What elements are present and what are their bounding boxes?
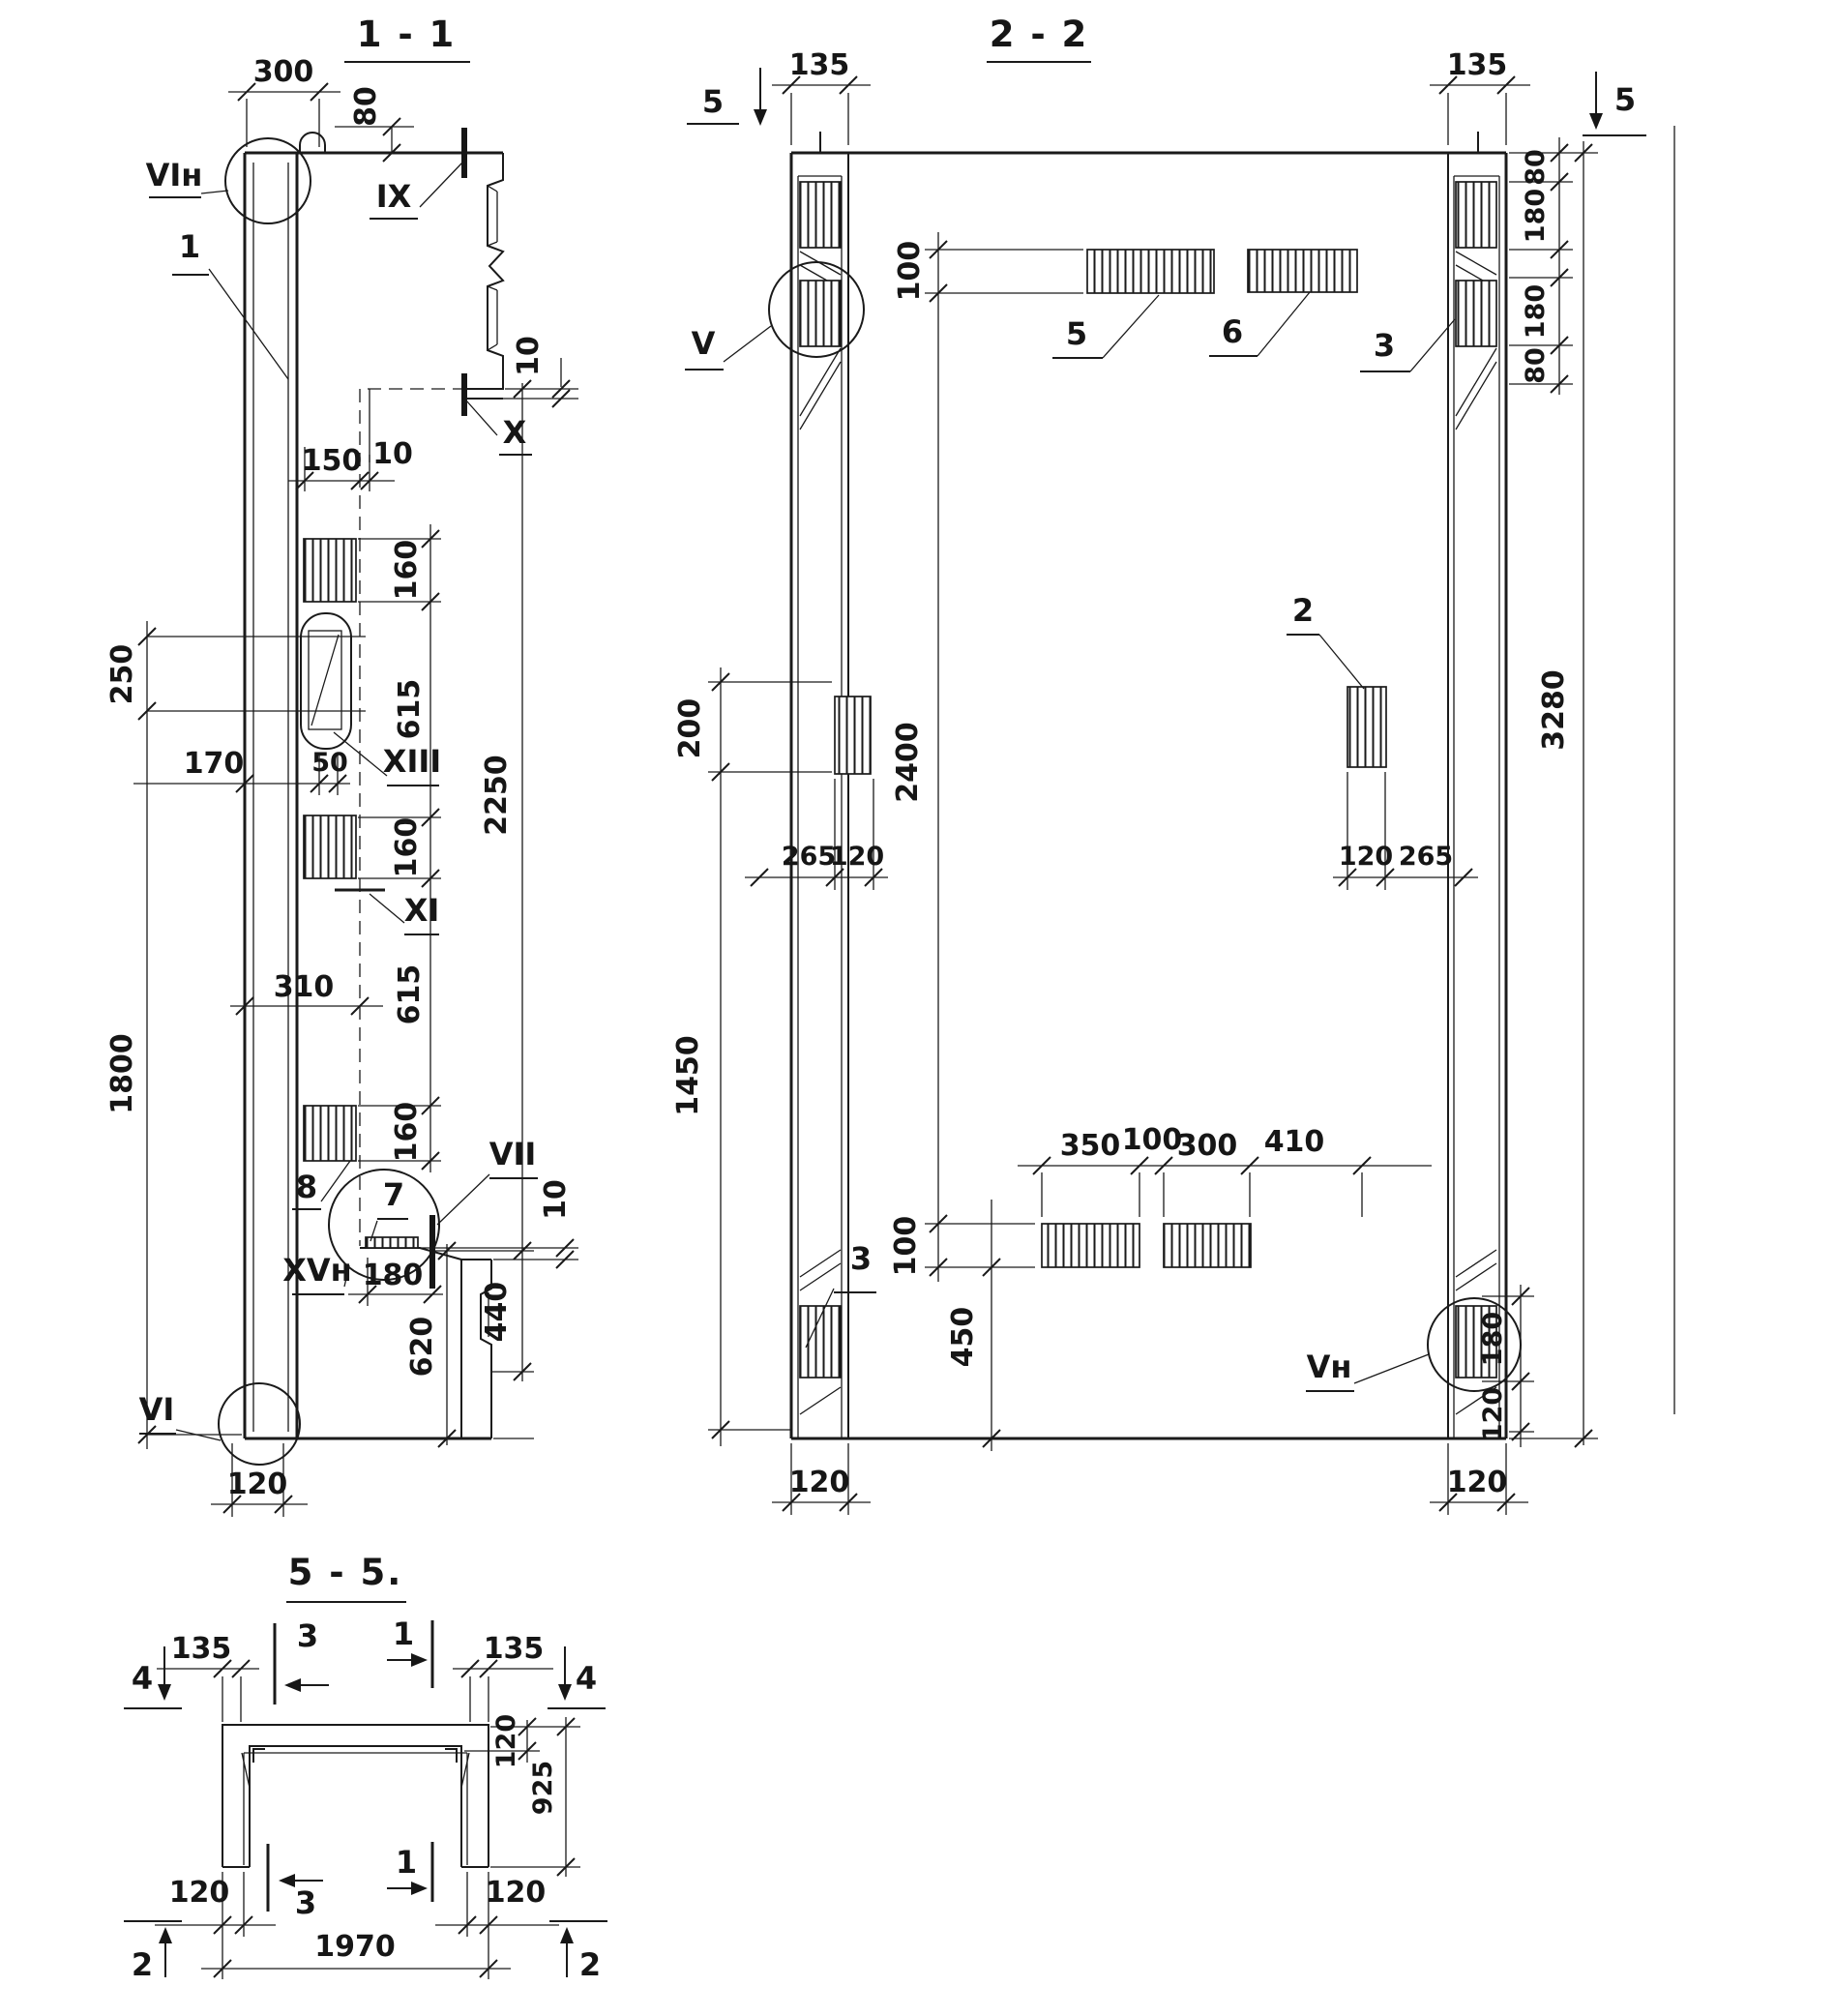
embedded-bar-bottom-b bbox=[1164, 1224, 1251, 1267]
dim-180-right: 180 bbox=[1478, 1312, 1508, 1366]
dim-160-a: 160 bbox=[390, 540, 424, 601]
dim-chain-right-1-1: 160 615 160 615 160 bbox=[358, 524, 441, 1172]
dim-10-mid: 10 bbox=[372, 437, 413, 471]
arrow-down-icon bbox=[1589, 113, 1603, 130]
dim-350: 350 bbox=[1060, 1129, 1121, 1163]
section-5-5: 5 - 5. 4 4 3 1 3 1 bbox=[124, 1552, 607, 1983]
marker-3-top: 3 bbox=[297, 1617, 318, 1654]
dim-180-group: 180 bbox=[348, 1258, 443, 1306]
dim-250: 250 bbox=[105, 644, 139, 705]
dim-120-bottom-group: 120 bbox=[211, 1443, 308, 1517]
dim-135-left-group: 135 bbox=[772, 48, 871, 145]
dim-200: 200 bbox=[673, 698, 707, 759]
dim-120-bottom-right-55-group: 120 bbox=[435, 1872, 559, 1979]
dim-1970-group: 1970 bbox=[201, 1930, 511, 1977]
embedded-block-2 bbox=[1347, 687, 1386, 767]
dim-265-120-left-group: 265 120 bbox=[745, 779, 888, 890]
marker-2-right: 2 bbox=[579, 1946, 601, 1983]
dim-2400: 2400 bbox=[891, 722, 925, 803]
dim-bottom-bars-group: 350 100 300 410 bbox=[1018, 1123, 1432, 1217]
dim-300: 300 bbox=[1177, 1129, 1238, 1163]
marker-2-left: 2 bbox=[132, 1946, 153, 1983]
dim-925: 925 bbox=[528, 1761, 558, 1815]
rebar-anchors-1-1 bbox=[301, 539, 356, 1161]
label-v-group: V bbox=[685, 325, 771, 370]
dim-120-left-mid: 120 bbox=[830, 842, 884, 872]
label-xi-group: XI bbox=[370, 892, 439, 934]
marker-1-top: 1 bbox=[393, 1616, 414, 1652]
arrow-left-icon bbox=[279, 1874, 295, 1887]
arrow-down-icon bbox=[754, 109, 767, 126]
label-8-group: 8 bbox=[292, 1161, 350, 1209]
dim-80-a: 80 bbox=[1521, 149, 1551, 186]
rebar-block bbox=[304, 1106, 356, 1161]
embedded-bar-6 bbox=[1248, 250, 1357, 292]
label-7: 7 bbox=[383, 1176, 404, 1213]
dim-chain-left-1-1: 250 1800 bbox=[105, 621, 366, 1449]
label-v: V bbox=[692, 325, 716, 362]
label-6-group: 6 bbox=[1209, 292, 1310, 356]
dim-620-group: 620 bbox=[405, 1242, 534, 1447]
arrow-down-icon bbox=[158, 1684, 171, 1701]
label-2: 2 bbox=[1292, 592, 1314, 629]
marker-3-top-group: 3 bbox=[275, 1617, 329, 1705]
section-marker-5-right: 5 bbox=[1583, 72, 1646, 135]
dim-50: 50 bbox=[311, 748, 348, 778]
marker-5-label: 5 bbox=[1614, 81, 1636, 118]
dim-80: 80 bbox=[349, 86, 383, 127]
panel-outline-1-1 bbox=[245, 133, 503, 1438]
label-7-group: 7 bbox=[370, 1176, 408, 1241]
label-1: 1 bbox=[179, 228, 200, 265]
dim-120-col-right: 120 bbox=[1447, 1466, 1508, 1499]
dim-135-left: 135 bbox=[789, 48, 850, 82]
marker-4-right: 4 bbox=[576, 1660, 597, 1697]
label-3-top: 3 bbox=[1374, 327, 1395, 364]
label-vi-group: VI bbox=[139, 1391, 221, 1440]
dim-1450: 1450 bbox=[671, 1035, 705, 1116]
dim-100-bars: 100 bbox=[1122, 1123, 1183, 1157]
marker-3-bottom: 3 bbox=[295, 1884, 316, 1921]
dim-10-bottom: 10 bbox=[539, 1179, 573, 1220]
label-vi-n: VIн bbox=[146, 157, 203, 193]
label-xi: XI bbox=[404, 892, 440, 929]
dim-80-group: 80 bbox=[335, 86, 414, 162]
dim-300-group: 300 bbox=[228, 55, 340, 147]
dim-410: 410 bbox=[1264, 1125, 1325, 1159]
label-x: X bbox=[503, 414, 527, 451]
channel-outline-5-5 bbox=[222, 1725, 488, 1867]
dim-120-right: 120 bbox=[486, 1876, 547, 1910]
marker-3-bottom-group: 3 bbox=[268, 1844, 323, 1921]
dim-150-10-group: 150 10 bbox=[288, 437, 413, 491]
arrow-right-icon bbox=[411, 1882, 428, 1895]
dim-2250-440-group: 2250 440 bbox=[435, 380, 534, 1381]
marker-1-top-group: 1 bbox=[387, 1616, 432, 1688]
dim-135-right: 135 bbox=[484, 1632, 545, 1666]
label-8: 8 bbox=[296, 1169, 317, 1205]
dim-450-group: 450 bbox=[946, 1200, 1000, 1451]
rebar-block bbox=[800, 281, 841, 346]
embedded-bar-5 bbox=[1087, 250, 1214, 293]
label-3-top-group: 3 bbox=[1360, 319, 1455, 371]
section-title: 1 - 1 bbox=[357, 14, 457, 55]
dim-310: 310 bbox=[274, 970, 335, 1004]
dim-10-top: 10 bbox=[512, 336, 546, 376]
label-xv-n-group: XVн bbox=[282, 1252, 352, 1294]
dim-80-b: 80 bbox=[1521, 347, 1551, 384]
marker-1-bottom: 1 bbox=[396, 1844, 417, 1881]
dim-120-bottom-left-55-group: 120 bbox=[155, 1872, 276, 1979]
flange-edge-keyways bbox=[466, 153, 503, 389]
label-xv-n: XVн bbox=[282, 1252, 352, 1289]
arrow-left-icon bbox=[284, 1678, 301, 1692]
section-5-5-title: 5 - 5. bbox=[286, 1552, 406, 1602]
dim-120-col-left-group: 120 bbox=[772, 1443, 871, 1515]
label-vi-n-group: VIн bbox=[146, 157, 228, 197]
marker-1-bottom-group: 1 bbox=[387, 1842, 432, 1902]
label-1-group: 1 bbox=[172, 228, 288, 379]
rebar-block bbox=[304, 539, 356, 602]
channel-inner bbox=[250, 1746, 461, 1867]
label-6: 6 bbox=[1222, 313, 1243, 350]
label-vi: VI bbox=[139, 1391, 175, 1428]
dim-135-right-group: 135 bbox=[1430, 48, 1530, 145]
dim-120-265-right-group: 120 265 bbox=[1333, 772, 1478, 890]
arrow-up-icon bbox=[159, 1927, 172, 1943]
rebar-block bbox=[1456, 281, 1496, 346]
dim-120: 120 bbox=[227, 1468, 288, 1501]
section-title: 2 - 2 bbox=[990, 14, 1089, 55]
step-anchor-hatch bbox=[366, 1237, 418, 1248]
arrow-right-icon bbox=[411, 1653, 428, 1667]
dim-265-right: 265 bbox=[1399, 842, 1453, 872]
dim-100-bottom: 100 bbox=[889, 1216, 923, 1277]
dim-180-b: 180 bbox=[1521, 284, 1551, 339]
dim-170-50-group: 170 50 bbox=[133, 747, 350, 795]
dim-120-col-right-group: 120 bbox=[1430, 1443, 1528, 1515]
dim-180: 180 bbox=[363, 1259, 424, 1292]
marker-2-left-group: 2 bbox=[124, 1921, 182, 1983]
dim-180-a: 180 bbox=[1521, 189, 1551, 243]
label-2-group: 2 bbox=[1287, 592, 1364, 689]
label-3-bottom: 3 bbox=[850, 1240, 872, 1277]
rebar-block bbox=[1456, 182, 1496, 248]
dim-300: 300 bbox=[253, 55, 314, 89]
dim-615-a: 615 bbox=[393, 679, 427, 740]
dim-120-col-left: 120 bbox=[789, 1466, 850, 1499]
dim-440: 440 bbox=[480, 1282, 514, 1343]
dim-450: 450 bbox=[946, 1307, 980, 1368]
dim-120-right-mid: 120 bbox=[1339, 842, 1393, 872]
dim-120-right: 120 bbox=[1478, 1387, 1508, 1441]
label-v-n-group: Vн bbox=[1306, 1349, 1429, 1391]
label-xiii: XIII bbox=[383, 743, 441, 780]
label-5-group: 5 bbox=[1052, 295, 1159, 358]
dim-chain-right-top-group: 80 180 180 80 bbox=[1509, 137, 1573, 395]
dim-135-left: 135 bbox=[171, 1632, 232, 1666]
rebar-block bbox=[800, 182, 841, 248]
right-column-internals bbox=[1456, 182, 1496, 1414]
rebar-block bbox=[304, 815, 356, 878]
embedded-block-left bbox=[835, 697, 871, 774]
marker-4-right-group: 4 bbox=[548, 1646, 606, 1708]
arrow-up-icon bbox=[560, 1927, 574, 1943]
dim-120-925-group: 120 925 bbox=[464, 1714, 580, 1877]
dim-150: 150 bbox=[302, 444, 363, 478]
label-v-n: Vн bbox=[1307, 1349, 1352, 1385]
dim-1970: 1970 bbox=[314, 1930, 396, 1964]
dim-170: 170 bbox=[184, 747, 245, 781]
dim-160-c: 160 bbox=[390, 1102, 424, 1163]
marker-2-right-group: 2 bbox=[549, 1921, 607, 1983]
drawing-sheet: 1 - 1 bbox=[0, 0, 1835, 2016]
arrow-down-icon bbox=[558, 1684, 572, 1701]
section-title: 5 - 5. bbox=[288, 1552, 403, 1593]
label-ix: IX bbox=[376, 178, 412, 215]
lifting-loop bbox=[300, 133, 325, 153]
dim-3280: 3280 bbox=[1537, 669, 1571, 751]
section-1-1-title: 1 - 1 bbox=[344, 14, 470, 62]
dim-2250: 2250 bbox=[480, 755, 514, 836]
label-5: 5 bbox=[1066, 315, 1087, 352]
section-2-2: 2 - 2 bbox=[671, 14, 1674, 1515]
embedded-bar-bottom-a bbox=[1042, 1224, 1139, 1267]
drawing-canvas: 1 - 1 bbox=[0, 0, 1835, 2016]
corner-rebar-marks bbox=[253, 1749, 457, 1763]
marker-5-label: 5 bbox=[702, 83, 724, 120]
dim-120-wall: 120 bbox=[491, 1714, 521, 1768]
dim-chain-center-group: 100 2400 100 bbox=[889, 232, 1083, 1282]
dim-135-right: 135 bbox=[1447, 48, 1508, 82]
section-2-2-title: 2 - 2 bbox=[987, 14, 1091, 62]
label-vii: VII bbox=[489, 1136, 537, 1172]
dim-265-left: 265 bbox=[782, 842, 836, 872]
label-ix-group: IX bbox=[370, 163, 462, 219]
dim-100-top: 100 bbox=[893, 241, 927, 302]
dim-120-left: 120 bbox=[169, 1876, 230, 1910]
dim-160-b: 160 bbox=[390, 817, 424, 878]
dim-620: 620 bbox=[405, 1317, 439, 1378]
section-1-1: 1 - 1 bbox=[105, 14, 578, 1517]
section-marker-5-left: 5 bbox=[687, 68, 767, 126]
dim-615-b: 615 bbox=[393, 964, 427, 1025]
marker-4-left: 4 bbox=[132, 1660, 153, 1697]
dim-135-right-55-group: 135 bbox=[453, 1632, 553, 1722]
dim-1800: 1800 bbox=[105, 1033, 139, 1114]
